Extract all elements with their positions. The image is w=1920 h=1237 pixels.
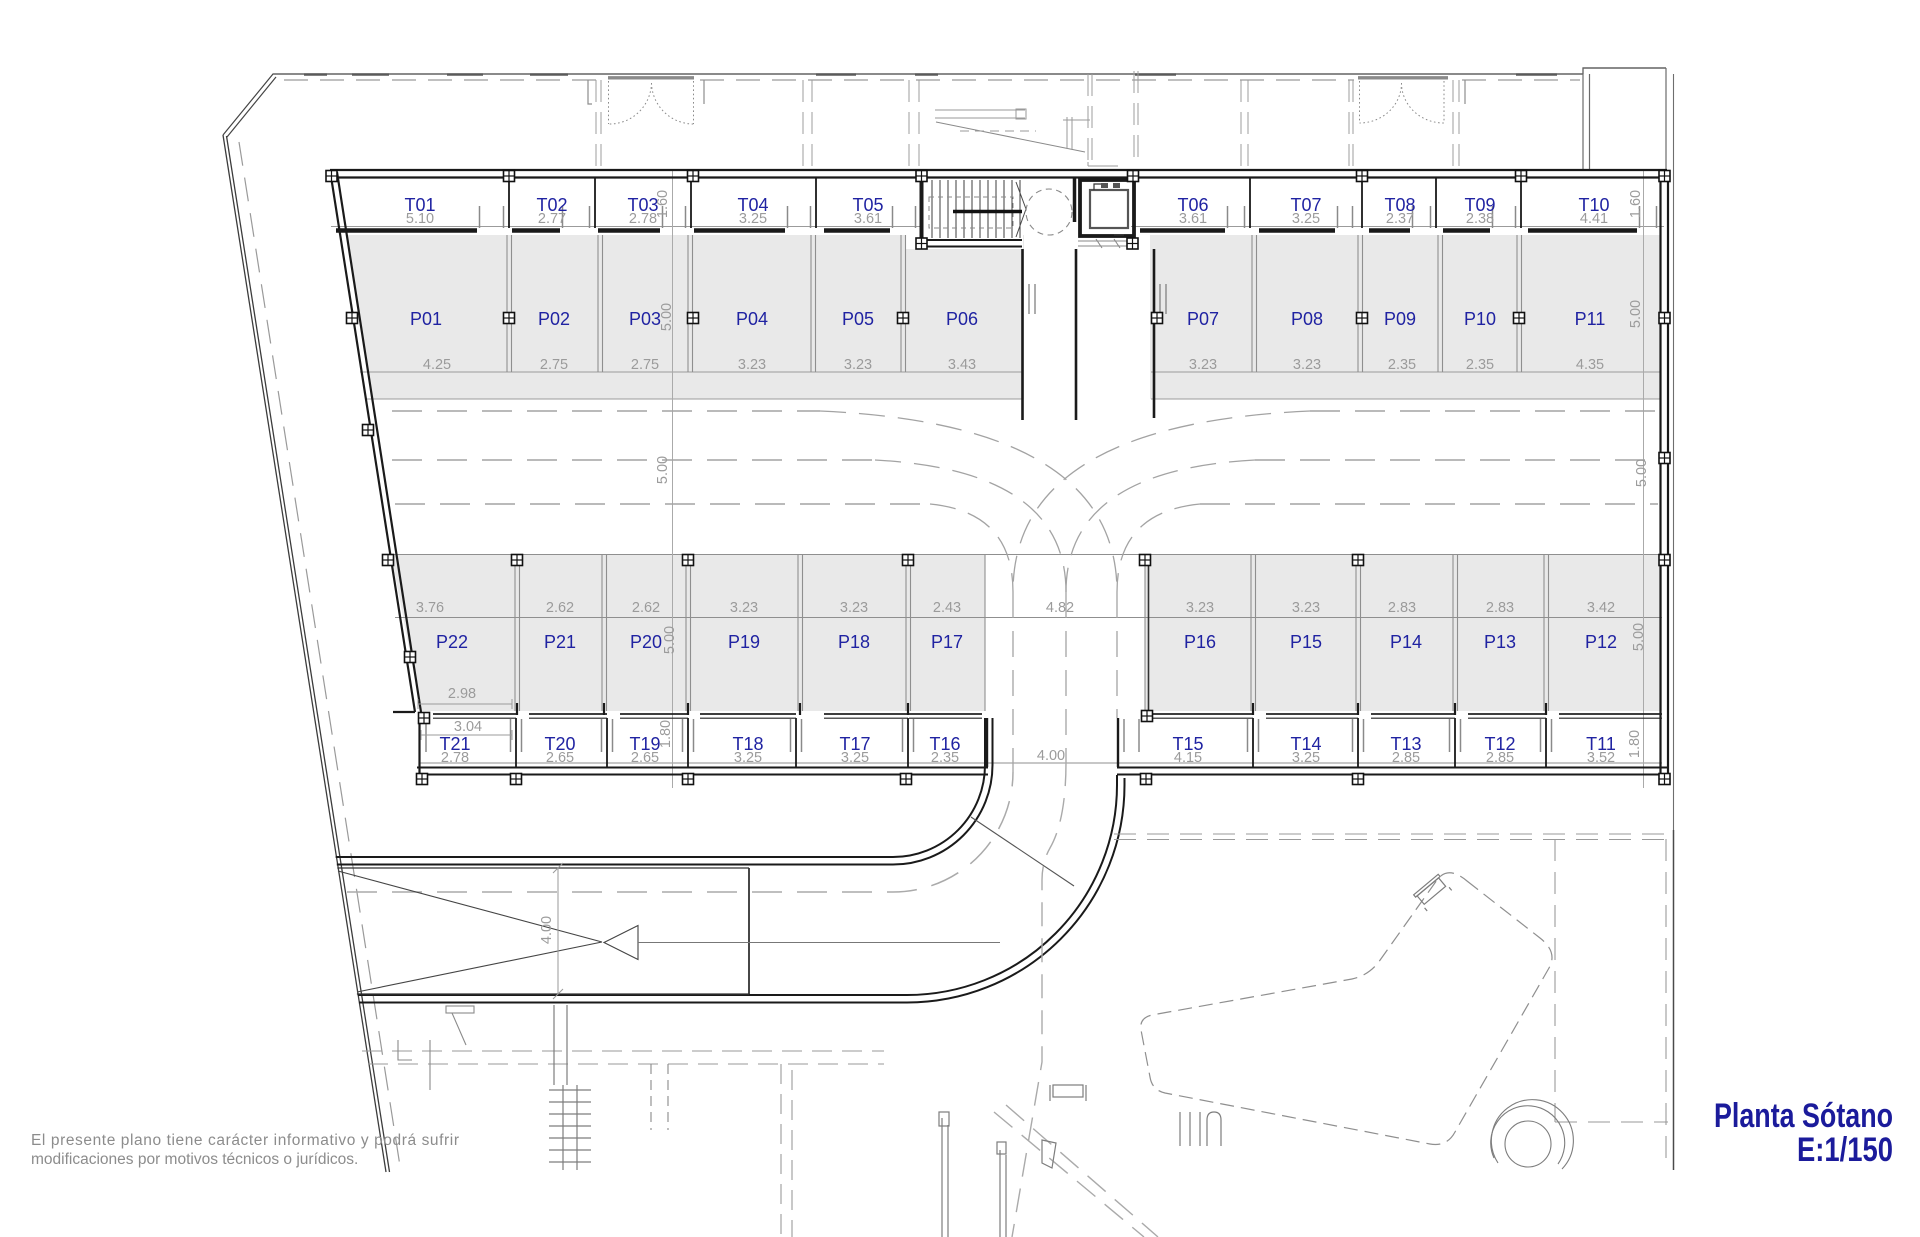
svg-text:P05: P05 xyxy=(842,309,874,329)
svg-text:3.23: 3.23 xyxy=(1186,600,1214,616)
svg-text:3.76: 3.76 xyxy=(416,600,444,616)
svg-text:3.25: 3.25 xyxy=(734,750,762,766)
svg-text:P01: P01 xyxy=(410,309,442,329)
svg-text:P04: P04 xyxy=(736,309,768,329)
svg-text:3.23: 3.23 xyxy=(840,600,868,616)
svg-text:3.23: 3.23 xyxy=(1292,600,1320,616)
svg-text:2.62: 2.62 xyxy=(546,600,574,616)
svg-text:3.25: 3.25 xyxy=(739,211,767,227)
svg-text:4.35: 4.35 xyxy=(1576,357,1604,373)
svg-text:P16: P16 xyxy=(1184,632,1216,652)
svg-text:2.65: 2.65 xyxy=(546,750,574,766)
svg-text:4.41: 4.41 xyxy=(1580,211,1608,227)
svg-text:1.60: 1.60 xyxy=(655,190,671,218)
svg-text:P15: P15 xyxy=(1290,632,1322,652)
svg-text:3.52: 3.52 xyxy=(1587,750,1615,766)
svg-text:2.43: 2.43 xyxy=(933,600,961,616)
svg-text:2.83: 2.83 xyxy=(1388,600,1416,616)
svg-text:3.61: 3.61 xyxy=(854,211,882,227)
svg-text:2.85: 2.85 xyxy=(1486,750,1514,766)
svg-text:3.43: 3.43 xyxy=(948,357,976,373)
svg-text:5.00: 5.00 xyxy=(662,626,678,654)
svg-text:5.00: 5.00 xyxy=(1631,623,1647,651)
svg-text:3.42: 3.42 xyxy=(1587,600,1615,616)
svg-text:4.00: 4.00 xyxy=(1037,748,1065,764)
svg-text:2.35: 2.35 xyxy=(1388,357,1416,373)
svg-text:5.00: 5.00 xyxy=(1628,300,1644,328)
svg-text:5.10: 5.10 xyxy=(406,211,434,227)
svg-text:P10: P10 xyxy=(1464,309,1496,329)
svg-text:Planta Sótano: Planta Sótano xyxy=(1714,1097,1893,1135)
svg-text:2.35: 2.35 xyxy=(1466,357,1494,373)
svg-text:5.00: 5.00 xyxy=(659,303,675,331)
svg-text:2.78: 2.78 xyxy=(629,211,657,227)
svg-text:2.83: 2.83 xyxy=(1486,600,1514,616)
svg-text:2.78: 2.78 xyxy=(441,750,469,766)
svg-text:P14: P14 xyxy=(1390,632,1422,652)
svg-text:3.25: 3.25 xyxy=(841,750,869,766)
svg-text:P03: P03 xyxy=(629,309,661,329)
svg-text:2.75: 2.75 xyxy=(540,357,568,373)
svg-text:2.62: 2.62 xyxy=(632,600,660,616)
svg-text:P22: P22 xyxy=(436,632,468,652)
svg-text:P20: P20 xyxy=(630,632,662,652)
svg-text:El presente plano tiene ca: El presente plano tiene carácter informa… xyxy=(31,1132,459,1149)
svg-text:3.25: 3.25 xyxy=(1292,211,1320,227)
svg-text:P18: P18 xyxy=(838,632,870,652)
svg-text:1.60: 1.60 xyxy=(1628,190,1644,218)
svg-text:2.77: 2.77 xyxy=(538,211,566,227)
svg-text:P19: P19 xyxy=(728,632,760,652)
svg-text:2.35: 2.35 xyxy=(931,750,959,766)
svg-text:3.04: 3.04 xyxy=(454,719,482,735)
svg-text:4.15: 4.15 xyxy=(1174,750,1202,766)
svg-text:E:1/150: E:1/150 xyxy=(1797,1131,1893,1169)
svg-text:3.23: 3.23 xyxy=(730,600,758,616)
svg-text:P06: P06 xyxy=(946,309,978,329)
svg-text:2.75: 2.75 xyxy=(631,357,659,373)
svg-text:P12: P12 xyxy=(1585,632,1617,652)
svg-text:3.23: 3.23 xyxy=(1293,357,1321,373)
svg-text:3.25: 3.25 xyxy=(1292,750,1320,766)
svg-text:3.23: 3.23 xyxy=(844,357,872,373)
svg-text:3.23: 3.23 xyxy=(1189,357,1217,373)
svg-text:3.61: 3.61 xyxy=(1179,211,1207,227)
svg-text:P21: P21 xyxy=(544,632,576,652)
svg-text:2.98: 2.98 xyxy=(448,686,476,702)
svg-text:2.85: 2.85 xyxy=(1392,750,1420,766)
svg-text:P11: P11 xyxy=(1575,309,1606,329)
svg-text:P07: P07 xyxy=(1187,309,1219,329)
svg-text:P02: P02 xyxy=(538,309,570,329)
svg-text:5.00: 5.00 xyxy=(1634,459,1650,487)
svg-text:3.23: 3.23 xyxy=(738,357,766,373)
svg-text:P17: P17 xyxy=(931,632,963,652)
svg-text:4.82: 4.82 xyxy=(1046,600,1074,616)
svg-text:4.00: 4.00 xyxy=(539,916,555,944)
svg-text:4.25: 4.25 xyxy=(423,357,451,373)
svg-text:2.65: 2.65 xyxy=(631,750,659,766)
svg-text:5.00: 5.00 xyxy=(655,456,671,484)
svg-text:1.80: 1.80 xyxy=(1627,730,1643,758)
svg-text:2.38: 2.38 xyxy=(1466,211,1494,227)
svg-text:P08: P08 xyxy=(1291,309,1323,329)
svg-text:P13: P13 xyxy=(1484,632,1516,652)
svg-text:modificaciones por motivos téc: modificaciones por motivos técnicos o ju… xyxy=(31,1151,358,1168)
svg-text:P09: P09 xyxy=(1384,309,1416,329)
svg-text:1.80: 1.80 xyxy=(658,720,674,748)
svg-text:2.37: 2.37 xyxy=(1386,211,1414,227)
